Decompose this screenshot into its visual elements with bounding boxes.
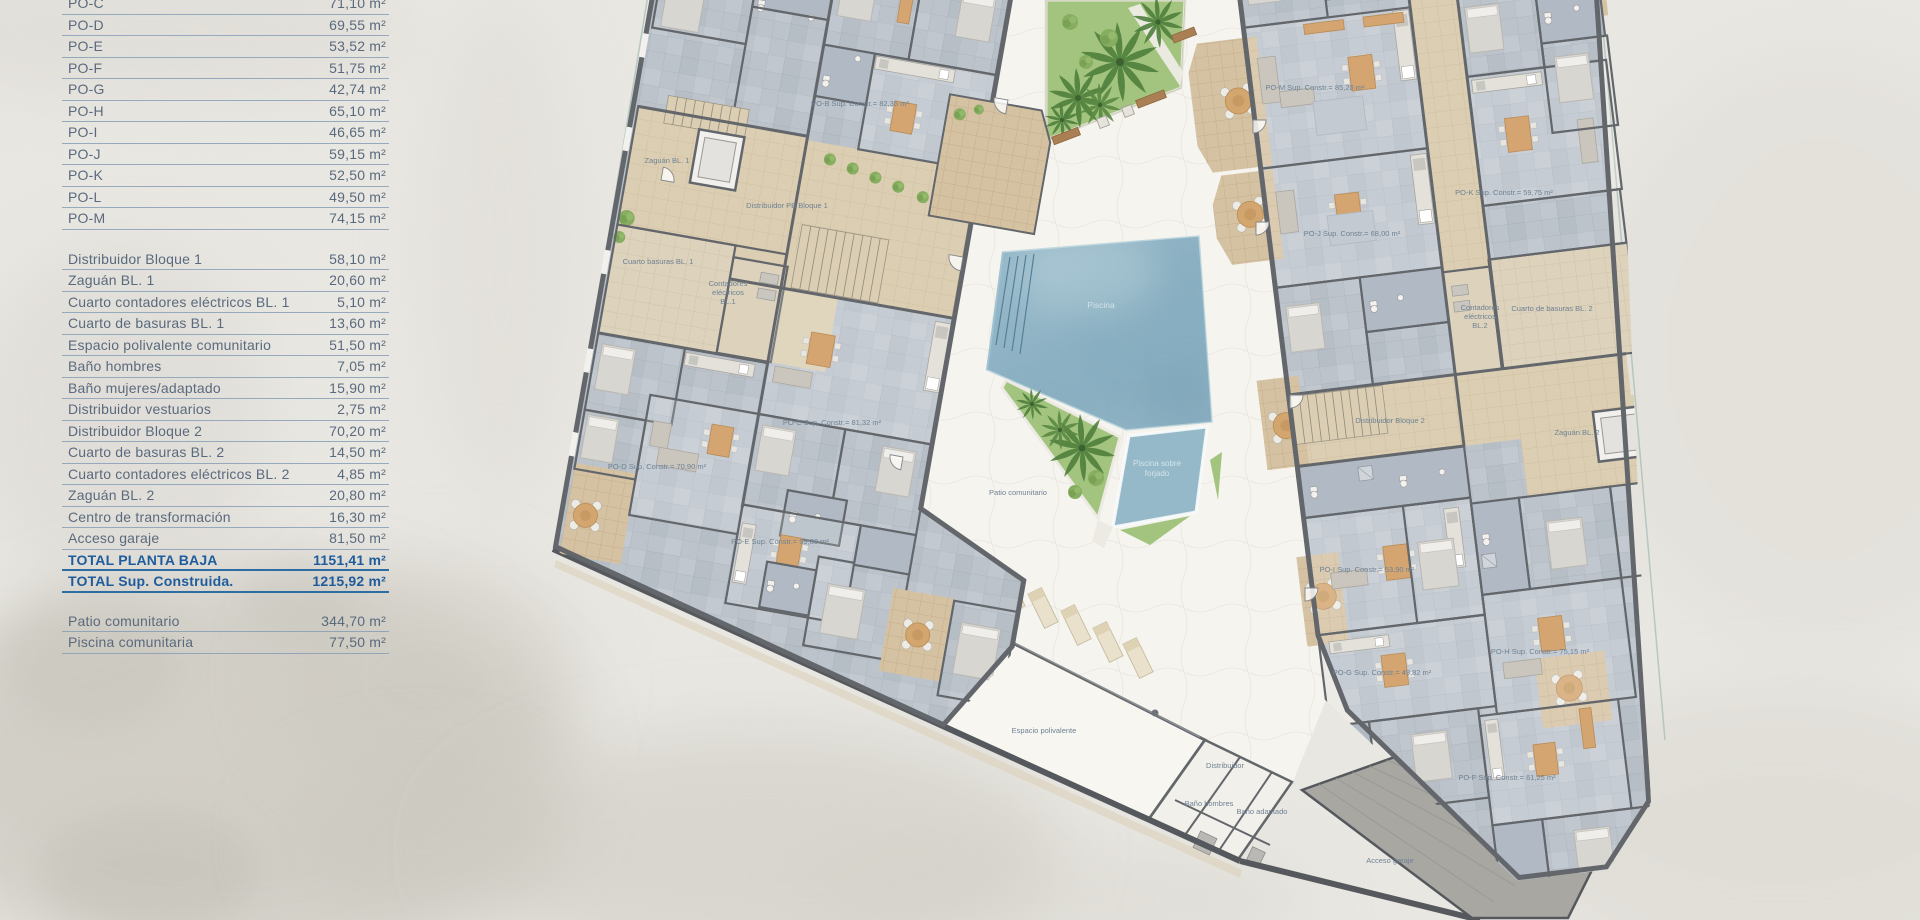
svg-text:Distribuidor: Distribuidor: [1206, 761, 1244, 770]
svg-text:PO-I Sup. Constr.= 53,90 m²: PO-I Sup. Constr.= 53,90 m²: [1320, 565, 1415, 574]
svg-text:Distribuidor PB Bloque 1: Distribuidor PB Bloque 1: [746, 201, 828, 210]
svg-text:PO-D Sup. Constr.= 70,90 m²: PO-D Sup. Constr.= 70,90 m²: [608, 462, 707, 471]
svg-text:PO-H Sup. Constr.= 75,15 m²: PO-H Sup. Constr.= 75,15 m²: [1491, 647, 1590, 656]
svg-text:Piscina sobre: Piscina sobre: [1133, 459, 1182, 468]
svg-text:Piscina: Piscina: [1087, 300, 1115, 310]
svg-text:Baño hombres: Baño hombres: [1185, 799, 1234, 808]
svg-text:PO-E Sup. Constr.= 59,80 m²: PO-E Sup. Constr.= 59,80 m²: [731, 537, 829, 546]
svg-text:Cuarto basuras BL. 1: Cuarto basuras BL. 1: [623, 257, 694, 266]
svg-text:PO-F Sup. Constr.= 61,25 m²: PO-F Sup. Constr.= 61,25 m²: [1458, 773, 1556, 782]
svg-text:Espacio polivalente: Espacio polivalente: [1012, 726, 1077, 735]
svg-text:Patio comunitario: Patio comunitario: [989, 488, 1047, 497]
svg-text:PO-C Sup. Constr.= 81,32 m²: PO-C Sup. Constr.= 81,32 m²: [783, 418, 882, 427]
svg-text:Contadores: Contadores: [1461, 303, 1500, 312]
svg-text:Contadores: Contadores: [709, 279, 748, 288]
svg-text:Baño adaptado: Baño adaptado: [1237, 807, 1288, 816]
svg-text:PO-B Sup. Constr.= 82,35 m²: PO-B Sup. Constr.= 82,35 m²: [811, 99, 909, 108]
svg-text:Zaguán BL. 1: Zaguán BL. 1: [644, 156, 689, 165]
svg-text:eléctricos: eléctricos: [712, 288, 744, 297]
svg-text:Distribuidor Bloque 2: Distribuidor Bloque 2: [1355, 416, 1425, 425]
svg-text:Zaguán BL. 2: Zaguán BL. 2: [1554, 428, 1599, 437]
svg-text:eléctricos: eléctricos: [1464, 312, 1496, 321]
svg-text:PO-J Sup. Constr.= 68,00 m²: PO-J Sup. Constr.= 68,00 m²: [1304, 229, 1401, 238]
svg-text:Acceso garaje: Acceso garaje: [1366, 856, 1414, 865]
svg-text:PO-G Sup. Constr.= 49,82 m²: PO-G Sup. Constr.= 49,82 m²: [1333, 668, 1432, 677]
svg-text:Cuarto de basuras BL. 2: Cuarto de basuras BL. 2: [1511, 304, 1592, 313]
svg-text:forjado: forjado: [1145, 469, 1170, 478]
svg-text:PO-M Sup. Constr.= 85,20 m²: PO-M Sup. Constr.= 85,20 m²: [1266, 83, 1366, 92]
svg-text:BL.2: BL.2: [1472, 321, 1487, 330]
svg-text:PO-K Sup. Constr.= 59,75 m²: PO-K Sup. Constr.= 59,75 m²: [1455, 188, 1553, 197]
svg-text:BL.1: BL.1: [720, 297, 735, 306]
